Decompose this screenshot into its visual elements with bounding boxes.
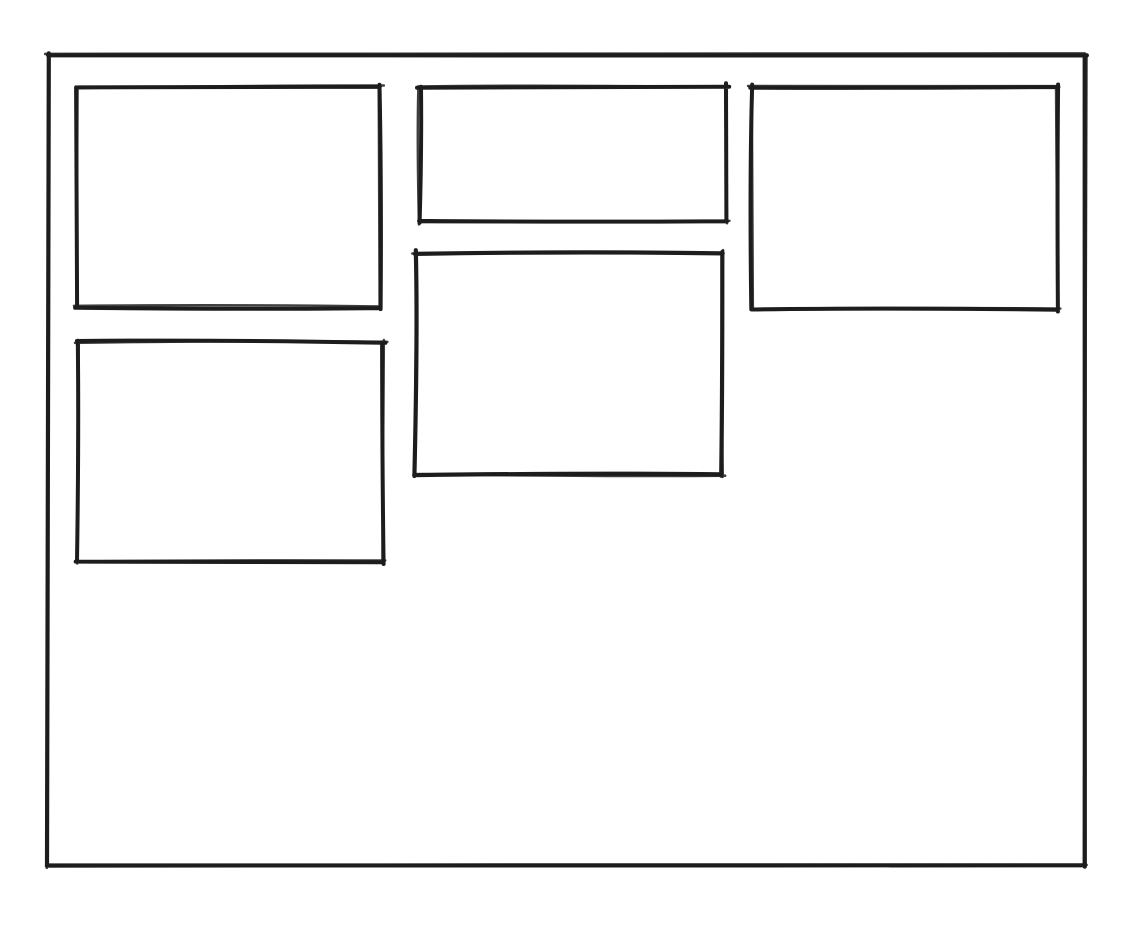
outer-frame: [45, 53, 1087, 868]
panel-mid-center: [412, 250, 725, 477]
panel-top-center: [417, 83, 730, 224]
panel-top-right: [748, 84, 1060, 312]
panel-mid-left: [75, 340, 388, 564]
panel-top-left: [74, 85, 384, 309]
wireframe-sketch: [0, 0, 1144, 938]
wireframe-canvas: [0, 0, 1144, 938]
